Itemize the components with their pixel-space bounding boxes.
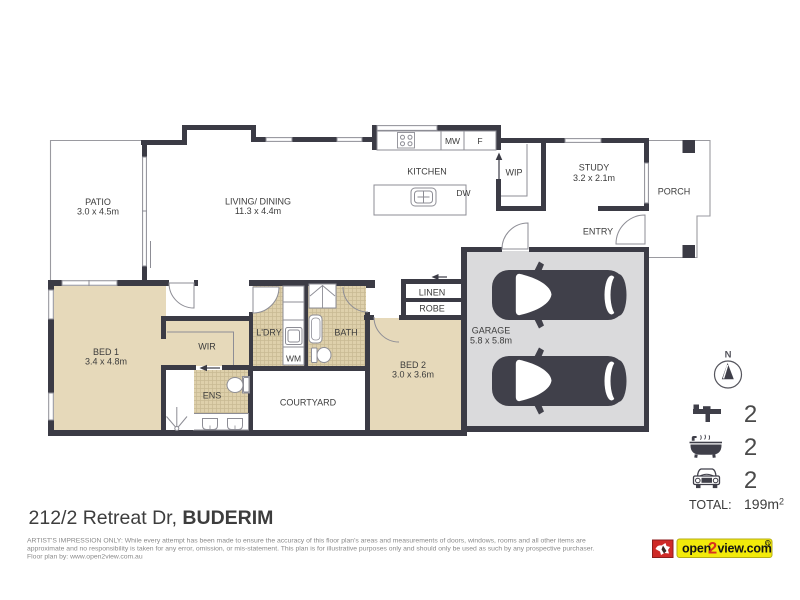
svg-text:N: N	[725, 350, 732, 361]
svg-text:3.0 x 3.6m: 3.0 x 3.6m	[392, 370, 434, 380]
svg-text:Floor plan by: www.open2view.c: Floor plan by: www.open2view.com.au	[27, 554, 143, 561]
svg-text:BED 1: BED 1	[93, 347, 119, 357]
svg-text:KITCHEN: KITCHEN	[407, 167, 447, 177]
svg-text:ROBE: ROBE	[419, 304, 445, 314]
svg-text:STUDY: STUDY	[579, 163, 610, 173]
svg-text:TOTAL:: TOTAL:	[689, 498, 732, 512]
svg-text:F: F	[477, 136, 482, 146]
svg-text:212/2 Retreat Dr, BUDERIM: 212/2 Retreat Dr, BUDERIM	[29, 507, 274, 529]
svg-text:L'DRY: L'DRY	[256, 328, 282, 338]
svg-text:LINEN: LINEN	[419, 288, 446, 298]
svg-text:PORCH: PORCH	[658, 187, 691, 197]
svg-text:11.3 x 4.4m: 11.3 x 4.4m	[235, 206, 281, 216]
svg-text:COURTYARD: COURTYARD	[280, 398, 337, 408]
svg-text:DW: DW	[456, 188, 470, 198]
svg-text:ENS: ENS	[203, 391, 222, 401]
svg-text:GARAGE: GARAGE	[472, 326, 511, 336]
svg-text:WM: WM	[286, 354, 301, 364]
svg-text:2: 2	[744, 401, 757, 428]
svg-text:open: open	[682, 542, 711, 556]
svg-text:2: 2	[708, 540, 717, 558]
svg-text:BATH: BATH	[334, 328, 357, 338]
svg-text:3.2 x 2.1m: 3.2 x 2.1m	[573, 173, 615, 183]
svg-text:R: R	[766, 541, 769, 546]
svg-text:approximate and no responsibil: approximate and no responsibility is tak…	[27, 546, 594, 553]
svg-text:PATIO: PATIO	[85, 197, 111, 207]
svg-text:WIP: WIP	[506, 168, 523, 178]
svg-text:5.8 x 5.8m: 5.8 x 5.8m	[470, 336, 512, 346]
svg-text:MW: MW	[445, 136, 460, 146]
svg-text:2: 2	[744, 434, 757, 461]
svg-text:BED 2: BED 2	[400, 360, 426, 370]
svg-text:ENTRY: ENTRY	[583, 227, 613, 237]
svg-text:ARTIST'S IMPRESSION ONLY: Whil: ARTIST'S IMPRESSION ONLY: While every at…	[27, 538, 586, 545]
svg-text:199m2: 199m2	[744, 496, 784, 512]
svg-text:LIVING/ DINING: LIVING/ DINING	[225, 197, 291, 207]
svg-text:WIR: WIR	[198, 342, 216, 352]
svg-text:2: 2	[744, 467, 757, 494]
svg-text:view.com: view.com	[718, 542, 772, 556]
svg-text:3.4 x 4.8m: 3.4 x 4.8m	[85, 357, 127, 367]
svg-text:3.0 x 4.5m: 3.0 x 4.5m	[77, 207, 119, 217]
